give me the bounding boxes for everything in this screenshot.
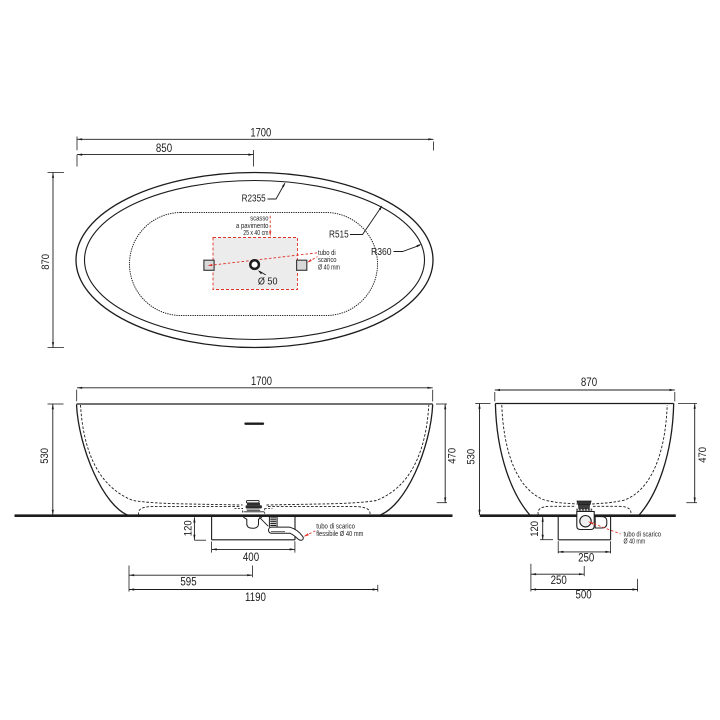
svg-text:470: 470 <box>447 448 459 464</box>
svg-text:Ø 40 mm: Ø 40 mm <box>318 264 340 271</box>
svg-text:tubo di scarico: tubo di scarico <box>316 523 355 530</box>
svg-text:400: 400 <box>243 552 259 564</box>
svg-text:Ø 40 mm: Ø 40 mm <box>624 538 646 545</box>
svg-text:595: 595 <box>180 577 196 589</box>
svg-text:1700: 1700 <box>251 376 272 388</box>
svg-text:R360: R360 <box>371 247 392 258</box>
svg-text:850: 850 <box>156 143 172 155</box>
svg-text:500: 500 <box>576 589 592 601</box>
svg-text:tubo di: tubo di <box>318 250 336 257</box>
svg-text:1700: 1700 <box>250 128 271 140</box>
svg-text:flessibile Ø 40 mm: flessibile Ø 40 mm <box>316 531 363 538</box>
svg-text:R515: R515 <box>329 230 349 241</box>
svg-text:530: 530 <box>39 448 51 464</box>
svg-text:1190: 1190 <box>245 592 266 604</box>
svg-text:Ø 50: Ø 50 <box>258 275 278 287</box>
svg-text:R2355: R2355 <box>242 194 266 205</box>
svg-text:scasso: scasso <box>250 216 268 223</box>
svg-text:530: 530 <box>466 449 478 465</box>
svg-text:870: 870 <box>581 377 597 389</box>
svg-text:25 x 40 cm: 25 x 40 cm <box>243 230 268 237</box>
svg-text:120: 120 <box>529 521 541 537</box>
svg-text:870: 870 <box>40 254 52 270</box>
svg-text:250: 250 <box>551 575 567 587</box>
svg-text:120: 120 <box>182 520 194 536</box>
svg-text:scarico: scarico <box>318 257 337 264</box>
svg-text:a pavimento: a pavimento <box>236 223 269 230</box>
svg-text:250: 250 <box>578 552 594 564</box>
svg-text:470: 470 <box>697 447 709 463</box>
